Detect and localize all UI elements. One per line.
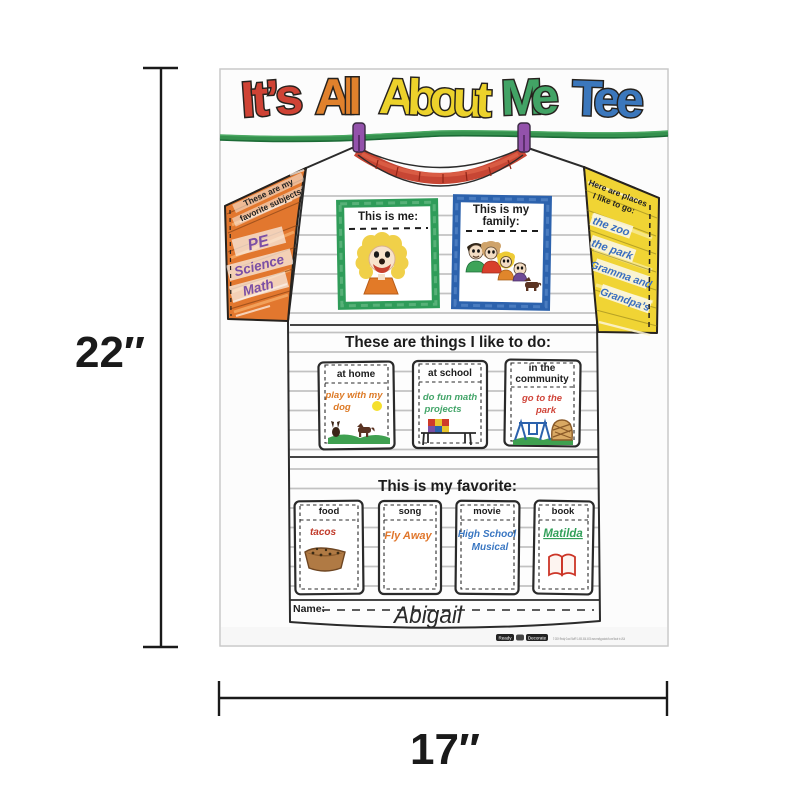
svg-text:in the: in the (529, 363, 556, 374)
svg-text:© 2009 Really Good Stuff® 1-8: © 2009 Really Good Stuff® 1-800-366-1920… (553, 636, 625, 641)
svg-text:Me: Me (500, 68, 560, 126)
svg-text:This is me:: This is me: (358, 211, 418, 223)
svg-text:movie: movie (473, 506, 500, 517)
svg-text:Musical: Musical (472, 542, 509, 553)
svg-text:This is my favorite:: This is my favorite: (378, 478, 517, 495)
svg-text:These are things I like to do:: These are things I like to do: (345, 334, 551, 351)
svg-text:It’s: It’s (239, 68, 305, 128)
svg-text:All: All (315, 69, 362, 125)
svg-text:High School: High School (458, 529, 517, 540)
svg-text:Tee: Tee (571, 70, 645, 128)
svg-text:Name:: Name: (293, 603, 325, 615)
svg-text:Abigail: Abigail (392, 602, 463, 629)
svg-text:food: food (319, 506, 340, 517)
svg-text:play with my: play with my (324, 390, 383, 401)
svg-text:tacos: tacos (310, 527, 337, 538)
svg-text:do fun math: do fun math (423, 392, 478, 403)
svg-text:song: song (399, 506, 422, 517)
svg-text:About: About (378, 68, 493, 128)
svg-text:projects: projects (424, 404, 462, 415)
svg-text:17″: 17″ (410, 725, 480, 774)
svg-text:family:: family: (482, 216, 519, 228)
svg-text:book: book (552, 506, 575, 517)
svg-text:Fly Away: Fly Away (384, 530, 432, 542)
svg-text:Matilda: Matilda (543, 528, 583, 540)
svg-text:at home: at home (337, 369, 376, 380)
svg-text:Ready: Ready (498, 636, 512, 641)
svg-text:22″: 22″ (75, 328, 145, 377)
svg-text:go to the: go to the (521, 393, 563, 404)
svg-text:park: park (535, 405, 557, 416)
svg-text:community: community (515, 374, 569, 385)
svg-text:at school: at school (428, 368, 472, 379)
svg-text:This is my: This is my (473, 204, 530, 216)
svg-text:dog: dog (333, 402, 351, 413)
svg-text:Decorate: Decorate (528, 636, 547, 641)
